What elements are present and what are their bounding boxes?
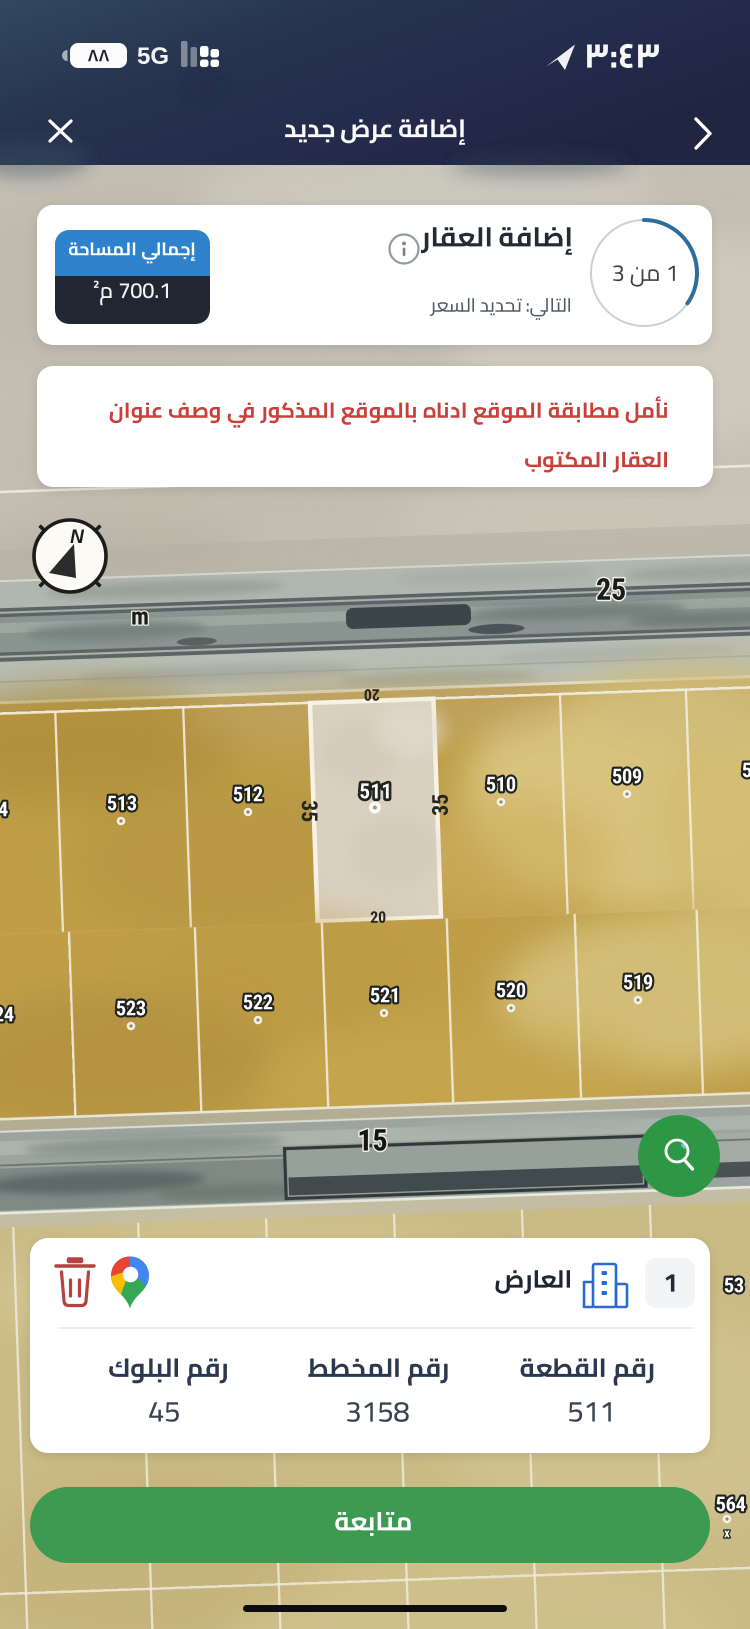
svg-text:N: N [70,527,85,548]
svg-text:5G: 5G [137,43,169,70]
